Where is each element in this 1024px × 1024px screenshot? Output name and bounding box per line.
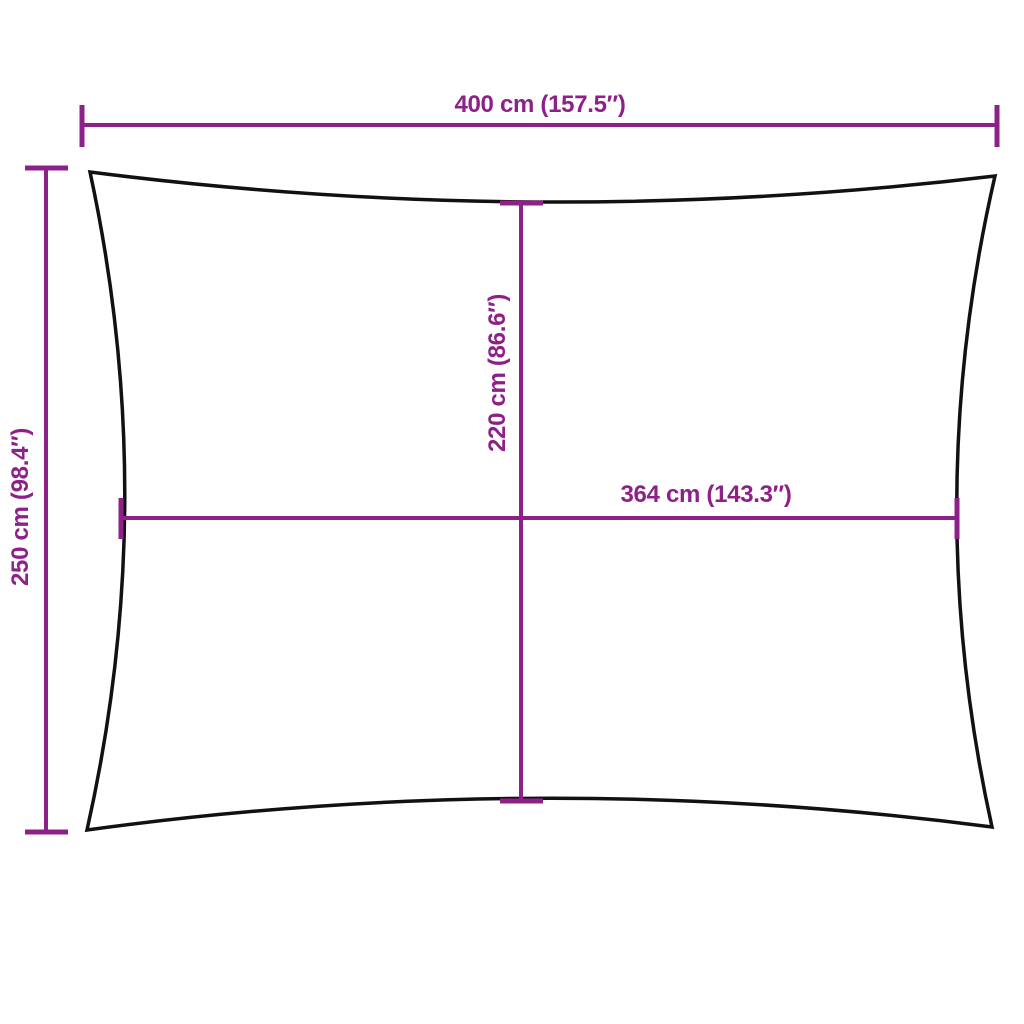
dimension-outer-width: 400 cm (157.5″) bbox=[82, 91, 997, 147]
outer-width-label: 400 cm (157.5″) bbox=[454, 91, 625, 118]
diagram-canvas: 400 cm (157.5″) 250 cm (98.4″) 220 cm (8… bbox=[0, 0, 1024, 1024]
outer-height-label: 250 cm (98.4″) bbox=[7, 428, 34, 586]
inner-width-label: 364 cm (143.3″) bbox=[620, 481, 791, 508]
inner-height-label: 220 cm (86.6″) bbox=[484, 294, 511, 452]
dimension-outer-height: 250 cm (98.4″) bbox=[7, 168, 68, 832]
sail-outline-shape bbox=[87, 172, 995, 830]
shade-sail-dimension-diagram: 400 cm (157.5″) 250 cm (98.4″) 220 cm (8… bbox=[0, 0, 1024, 1024]
